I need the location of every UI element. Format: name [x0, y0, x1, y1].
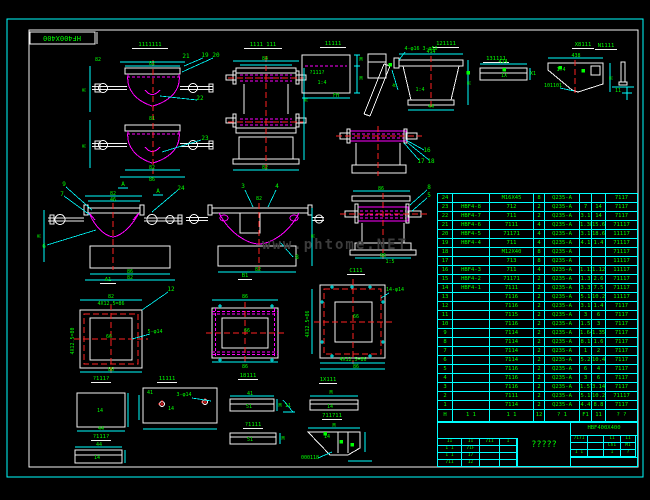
bom-row: 22HBF4-77112Q235-A3.1147117: [438, 212, 637, 221]
bom-cell: 10: [438, 320, 453, 329]
dimension-label: 414: [426, 49, 435, 55]
bom-cell: 18: [438, 248, 453, 257]
dimension-label: 82: [95, 57, 101, 63]
balloon-label: 4: [275, 183, 279, 190]
bom-cell: HBF4-6: [453, 221, 490, 230]
bom-row: H1 11 112? 1F111? ?: [438, 410, 637, 421]
dimension-label: M: [278, 403, 281, 409]
bom-cell: 1.6: [592, 338, 606, 347]
bom-cell: 3: [438, 383, 453, 392]
bom-row: 571162Q235-A647117: [438, 365, 637, 374]
balloon-label: 8: [427, 184, 431, 191]
bom-cell: 23: [438, 203, 453, 212]
bom-cell: 7117: [606, 374, 637, 383]
title-block: 111171111 171F1 11771112 ????? HBF400X40…: [437, 422, 638, 467]
signature-row: 11117111: [438, 439, 517, 446]
bom-cell: 2: [534, 212, 545, 221]
balloon-label: 21: [182, 53, 190, 60]
bom-cell: 3: [580, 374, 592, 383]
view-title: 1111111: [138, 42, 161, 48]
dimension-label: 1:4: [317, 80, 326, 86]
bom-cell: 7116: [490, 293, 534, 302]
bom-cell: 1 1: [453, 410, 490, 421]
bom-cell: 713: [490, 257, 534, 266]
bom-row: 271112Q235-A5.110.271117: [438, 392, 637, 401]
bom-cell: 5.2: [580, 356, 592, 365]
dimension-label: 14: [327, 404, 333, 410]
bom-cell: 7114: [490, 338, 534, 347]
bom-cell: [453, 311, 490, 320]
bom-cell: 4: [592, 365, 606, 374]
bom-cell: 71117: [606, 284, 637, 293]
bom-cell: M16X45: [490, 194, 534, 203]
dimension-label: 000118: [301, 455, 319, 461]
dimension-label: 41: [247, 391, 253, 397]
bom-cell: 11117: [606, 257, 637, 266]
bom-cell: Q235-A: [545, 374, 580, 383]
dimension-label: 51: [247, 437, 253, 443]
dimension-label: 4X12.5=86: [97, 301, 124, 307]
bom-cell: 7: [438, 347, 453, 356]
dimension-label: 82: [262, 165, 268, 171]
bom-row: 1271162Q235-A3.11.47117: [438, 302, 637, 311]
bom-cell: 16: [438, 266, 453, 275]
bom-cell: 17: [438, 257, 453, 266]
titleblock-row: 1 11?: [571, 450, 637, 457]
bom-cell: 18.6: [592, 230, 606, 239]
bom-cell: 711: [490, 266, 534, 275]
titleblock-cell: [571, 443, 588, 450]
bom-cell: 7111: [490, 284, 534, 293]
bom-cell: 1.57: [580, 383, 592, 392]
bom-cell: 7117: [606, 356, 637, 365]
dimension-label: M: [82, 88, 88, 91]
bom-cell: Q235-A: [545, 293, 580, 302]
dimension-label: 86: [242, 364, 248, 370]
bom-cell: 3.1: [580, 212, 592, 221]
bom-cell: 8.1: [580, 338, 592, 347]
bom-cell: [453, 392, 490, 401]
bom-cell: 11117: [606, 293, 637, 302]
bom-cell: [453, 320, 490, 329]
titleblock-cell: [588, 436, 604, 443]
bom-cell: 2: [592, 347, 606, 356]
dimension-label: 1:5: [385, 259, 394, 265]
view-title: N1111: [598, 43, 615, 49]
bom-cell: 14: [438, 284, 453, 293]
bom-row: 18M12X408Q235-A71117: [438, 248, 637, 257]
dimension-label: M: [359, 76, 362, 82]
dimension-label: 86: [149, 177, 155, 183]
bom-cell: H: [438, 410, 453, 421]
bom-cell: Q235-A: [545, 347, 580, 356]
balloon-label: 18: [427, 158, 435, 165]
dimension-label: 82: [149, 61, 155, 67]
bom-cell: 2: [534, 320, 545, 329]
bom-cell: [580, 248, 592, 257]
bom-cell: 7117: [606, 302, 637, 311]
bom-cell: 24: [438, 194, 453, 203]
balloon-label: 9: [62, 181, 66, 188]
bom-cell: 3: [580, 311, 592, 320]
bom-row: 971142Q235-A1.641.357117: [438, 329, 637, 338]
balloon-label: 20: [212, 52, 220, 59]
balloon-label: 6: [42, 243, 46, 250]
bom-cell: 8: [438, 338, 453, 347]
bom-cell: 2: [438, 392, 453, 401]
signature-row: 71112: [438, 460, 517, 467]
bom-row: 1171152Q235-A367117: [438, 311, 637, 320]
bom-cell: [580, 257, 592, 266]
bom-cell: 71171: [490, 275, 534, 284]
bom-cell: [453, 374, 490, 383]
title-block-right: HBF400X400 71711111Ch1M11 11?: [571, 423, 637, 466]
signature-cell: 1: [500, 439, 517, 446]
bom-cell: 711: [490, 239, 534, 248]
bom-row: 20HBF4-5711714Q235-A3.118.611117: [438, 230, 637, 239]
bom-cell: Q235-A: [545, 284, 580, 293]
drawing-title: ?????: [518, 423, 571, 466]
titleblock-cell: M1: [621, 443, 636, 450]
bom-cell: 7117: [606, 338, 637, 347]
bom-row: 471162Q235-A367117: [438, 374, 637, 383]
bom-cell: 4: [534, 221, 545, 230]
bom-cell: [453, 356, 490, 365]
dimension-label: 51: [246, 404, 252, 410]
view-title: ?111?: [93, 434, 110, 440]
bom-row: 14HBF4-171112Q235-A3.37.571117: [438, 284, 637, 293]
bom-cell: [453, 302, 490, 311]
signature-cell: 1 1: [438, 453, 462, 460]
dimension-label: 82: [108, 294, 114, 300]
signature-cell: 12: [462, 460, 480, 467]
dimension-label: 14: [168, 406, 174, 412]
dimension-label: 44: [96, 442, 102, 448]
bom-cell: 10.2: [592, 293, 606, 302]
bom-cell: 8: [534, 194, 545, 203]
dimension-label: 3-φ14: [176, 392, 191, 398]
bom-cell: 7114: [490, 356, 534, 365]
view-title: 711711: [322, 413, 342, 419]
signature-row: 1 171F: [438, 446, 517, 453]
bom-cell: Q235-A: [545, 266, 580, 275]
bom-cell: 13: [438, 293, 453, 302]
signature-cell: 11: [462, 439, 480, 446]
bom-cell: HBF4-7: [453, 212, 490, 221]
bom-cell: [453, 248, 490, 257]
balloon-label: 24: [177, 185, 185, 192]
bom-cell: 7114: [490, 329, 534, 338]
bom-cell: 7117: [606, 311, 637, 320]
dimension-label: 11: [615, 88, 621, 94]
bom-cell: 7117: [606, 212, 637, 221]
dimension-label: 66: [106, 334, 112, 340]
dimension-label: 82: [255, 267, 261, 273]
bom-cell: 12: [438, 302, 453, 311]
balloon-label: 19: [201, 52, 209, 59]
signature-cell: [480, 446, 500, 453]
bom-cell: Q235-A: [545, 311, 580, 320]
view-hopper-front-assembly: [226, 56, 306, 172]
signature-cell: 17: [462, 453, 480, 460]
bom-row: 21HBF4-671114Q235-A1.3815.671117: [438, 221, 637, 230]
signature-grid: 111171111 171F1 11771112: [438, 438, 518, 466]
titleblock-cell: [588, 450, 604, 457]
bom-cell: 7117: [606, 203, 637, 212]
signature-cell: [480, 460, 500, 467]
bom-cell: Q235-A: [545, 320, 580, 329]
bom-cell: 14: [592, 203, 606, 212]
bom-cell: [453, 347, 490, 356]
balloon-label: 8: [295, 254, 299, 261]
view-title: 18111: [240, 373, 257, 379]
signature-cell: 711: [480, 439, 500, 446]
bom-row: 871142Q235-A8.11.67117: [438, 338, 637, 347]
weld-mark: [350, 443, 354, 447]
bom-row: 1071162Q235-A1.537117: [438, 320, 637, 329]
dimension-label: M: [392, 83, 399, 88]
bom-cell: [453, 401, 490, 410]
dimension-label: 11: [285, 403, 291, 409]
dimension-label: 82: [127, 275, 133, 281]
bom-cell: 2: [534, 311, 545, 320]
bom-cell: 7117: [606, 329, 637, 338]
titleblock-row: Ch1M1: [571, 443, 637, 450]
view-title: C111: [349, 268, 362, 274]
titleblock-cell: 11: [604, 436, 621, 443]
bom-cell: 7: [580, 203, 592, 212]
bom-cell: 1: [438, 401, 453, 410]
bom-cell: Q235-A: [545, 257, 580, 266]
view-bar-e: [230, 433, 280, 444]
balloon-label: A: [121, 181, 125, 188]
bom-cell: 11: [592, 410, 606, 421]
bom-cell: Q235-A: [545, 212, 580, 221]
bom-cell: 7117: [606, 401, 637, 410]
bom-cell: 5: [438, 365, 453, 374]
bom-table: 24M16X458Q235-A711723HBF4-87122Q235-A714…: [437, 193, 638, 422]
bom-cell: 7116: [490, 320, 534, 329]
dimension-label: 1X: [501, 73, 507, 79]
cad-drawing-viewport: HF400X400: [0, 0, 650, 500]
dimension-label: 86: [242, 294, 248, 300]
dimension-label: 5-φ14: [147, 329, 162, 335]
dimension-label: 438: [571, 53, 580, 59]
bom-cell: 712: [490, 203, 534, 212]
bom-cell: HBF4-1: [453, 284, 490, 293]
bom-cell: 11117: [606, 266, 637, 275]
bom-cell: Q235-A: [545, 329, 580, 338]
balloon-label: 12: [167, 286, 175, 293]
signature-cell: 711: [438, 460, 462, 467]
bom-cell: Q235-A: [545, 302, 580, 311]
dimension-label: 4X12.5=86: [339, 357, 366, 363]
bom-cell: 4.4: [580, 401, 592, 410]
view-title: ?111?: [93, 376, 110, 382]
dimension-label: ?111?: [309, 70, 324, 76]
weld-mark: [502, 68, 506, 72]
dimension-label: 414: [498, 59, 507, 65]
titleblock-cell: 1: [604, 450, 621, 457]
dimension-label: M: [329, 390, 332, 396]
bom-cell: Q235-A: [545, 392, 580, 401]
bom-cell: 2: [534, 284, 545, 293]
dimension-label: 84: [262, 56, 268, 62]
bom-cell: 711: [490, 212, 534, 221]
weld-mark: [323, 432, 327, 436]
bom-cell: Q235-A: [545, 194, 580, 203]
bom-cell: 1.4: [592, 239, 606, 248]
dimension-label: M: [332, 423, 335, 429]
signature-cell: 71F: [462, 446, 480, 453]
bom-row: 15HBF4-2711712Q235-A1.32.671117: [438, 275, 637, 284]
dimension-label: 44: [428, 104, 434, 110]
bom-cell: 4: [534, 239, 545, 248]
bom-cell: 6: [580, 365, 592, 374]
view-bar-d: [230, 396, 277, 411]
bom-cell: 2: [534, 203, 545, 212]
bom-cell: Q235-A: [545, 239, 580, 248]
bom-cell: 71117: [606, 239, 637, 248]
bom-cell: 3: [592, 320, 606, 329]
dimension-label: 66: [244, 328, 250, 334]
bom-cell: 1.5: [580, 320, 592, 329]
bom-cell: HBF4-5: [453, 230, 490, 239]
view-pin-detail: [612, 62, 634, 100]
dimension-label: 82: [149, 165, 155, 171]
titleblock-cell: 1 1: [571, 450, 588, 457]
bom-row: 23HBF4-87122Q235-A7147117: [438, 203, 637, 212]
bom-cell: 7111: [490, 392, 534, 401]
titleblock-cell: Ch1: [604, 443, 621, 450]
bom-row: 671142Q235-A5.210.47117: [438, 356, 637, 365]
bom-cell: 1.3: [580, 275, 592, 284]
dimension-label: 44: [98, 426, 104, 432]
bom-cell: 2: [534, 374, 545, 383]
bom-cell: 7.5: [592, 284, 606, 293]
bom-cell: Q235-A: [545, 365, 580, 374]
dimension-label: 14: [97, 408, 103, 414]
bom-cell: 2: [534, 383, 545, 392]
dimension-label: 46: [110, 197, 116, 203]
view-roller-support-upper: [336, 126, 429, 176]
view-plate-detail: [302, 55, 360, 98]
bom-cell: Q235-A: [545, 275, 580, 284]
drawing-frame-label: HF400X400: [43, 34, 81, 42]
bom-cell: 2: [534, 302, 545, 311]
balloon-label: 3: [241, 183, 245, 190]
view-bar-f: [283, 396, 358, 412]
dimension-label: 101101: [544, 83, 562, 89]
bom-cell: 2: [534, 401, 545, 410]
bom-row: 16HBF4-37114Q235-A1.131.1211117: [438, 266, 637, 275]
bom-cell: [592, 248, 606, 257]
bom-cell: Q235-A: [545, 338, 580, 347]
view-flange-plate-3: [312, 279, 392, 369]
bom-cell: ? ?: [606, 410, 637, 421]
bom-cell: 1.35: [592, 329, 606, 338]
dimension-label: 86: [108, 367, 114, 373]
dimension-label: M: [467, 81, 473, 84]
bom-cell: 1.64: [580, 329, 592, 338]
dimension-label: 14: [94, 455, 100, 461]
balloon-label: 16: [423, 147, 431, 154]
bom-row: 19HBF4-47114Q235-A4.11.471117: [438, 239, 637, 248]
bom-cell: ? 1: [545, 410, 580, 421]
bom-cell: 19: [438, 239, 453, 248]
dimension-label: M: [304, 98, 310, 101]
dimension-label: 4X12.5=80: [70, 327, 76, 354]
bom-cell: 3.1: [580, 230, 592, 239]
bom-cell: 6: [438, 356, 453, 365]
balloon-label: 22: [196, 95, 204, 102]
bom-cell: 1.38: [580, 221, 592, 230]
bom-cell: HBF4-4: [453, 239, 490, 248]
bom-row: 371162Q235-A1.573.147117: [438, 383, 637, 392]
view-title: 121111: [436, 41, 456, 47]
bom-cell: 71117: [606, 221, 637, 230]
bom-cell: Q235-A: [545, 248, 580, 257]
bom-row: 24M16X458Q235-A7117: [438, 194, 637, 203]
dimension-label: 86: [378, 186, 384, 192]
bom-cell: Q235-A: [545, 230, 580, 239]
bom-cell: 21: [438, 221, 453, 230]
balloon-label: 7: [60, 191, 64, 198]
bom-cell: 3.1: [580, 302, 592, 311]
bom-cell: 7117: [606, 383, 637, 392]
bom-cell: 71117: [606, 392, 637, 401]
drawing-number: HBF400X400: [571, 423, 637, 436]
titleblock-cell: ?: [621, 450, 636, 457]
bom-cell: M12X40: [490, 248, 534, 257]
dimension-label: 81: [149, 116, 155, 122]
signature-row: 1 117: [438, 453, 517, 460]
bom-cell: [453, 383, 490, 392]
bom-cell: HBF4-8: [453, 203, 490, 212]
bom-cell: Q235-A: [545, 221, 580, 230]
bom-cell: [453, 338, 490, 347]
bom-cell: 7117: [606, 347, 637, 356]
bom-cell: [453, 329, 490, 338]
dimension-label: M: [359, 57, 362, 63]
dimension-label: 1:4: [415, 87, 424, 93]
bom-cell: 12: [534, 410, 545, 421]
bom-row: 771142Q235-A127117: [438, 347, 637, 356]
bom-cell: [453, 194, 490, 203]
bom-cell: 7111: [490, 221, 534, 230]
bom-cell: 4: [438, 374, 453, 383]
bom-cell: 4: [534, 266, 545, 275]
view-title: X8111: [575, 42, 592, 48]
bom-cell: 6: [592, 311, 606, 320]
bom-cell: [592, 194, 606, 203]
titleblock-cell: [588, 443, 604, 450]
dimension-label: M: [281, 436, 284, 442]
bom-cell: 7116: [490, 374, 534, 383]
bom-cell: 4.1: [580, 239, 592, 248]
bom-cell: 7114: [490, 401, 534, 410]
view-title: 1X111: [320, 377, 337, 383]
bom-cell: 7116: [490, 302, 534, 311]
bom-cell: 10.2: [592, 392, 606, 401]
bom-cell: 71171: [490, 230, 534, 239]
bom-cell: 5.1: [580, 392, 592, 401]
bom-cell: 2.6: [592, 275, 606, 284]
weld-mark: [558, 66, 562, 70]
bom-cell: 2: [534, 275, 545, 284]
signature-cell: [500, 446, 517, 453]
bom-cell: 7115: [490, 311, 534, 320]
